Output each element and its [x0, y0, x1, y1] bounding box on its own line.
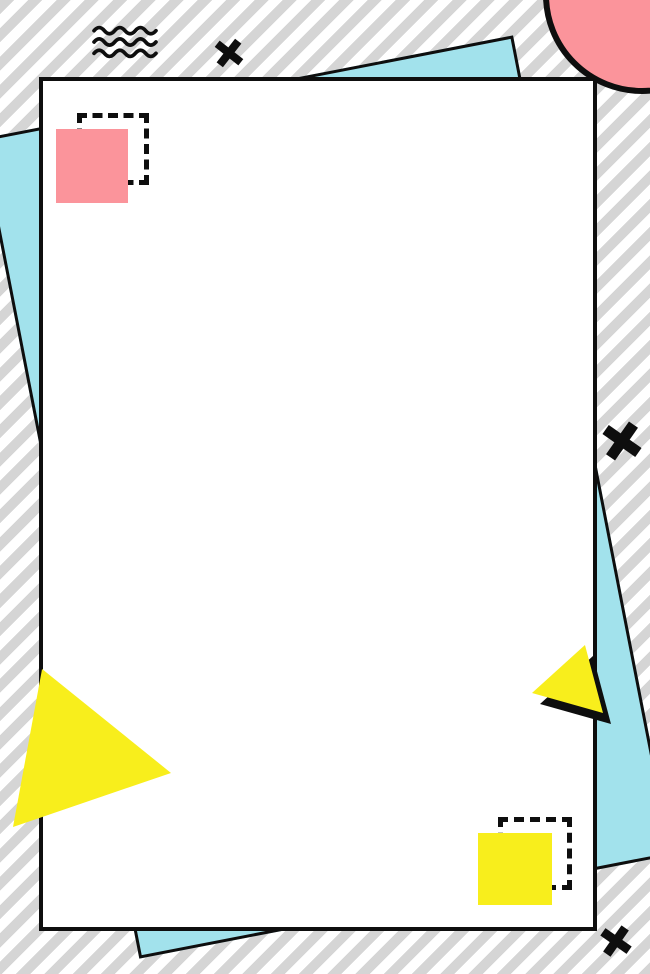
cross-mark-bottom-icon: [594, 919, 639, 964]
pink-square: [56, 129, 128, 203]
memphis-poster-background: [0, 0, 650, 974]
squiggle-waves-icon: [92, 24, 158, 60]
cross-mark-top-icon: [208, 32, 250, 74]
white-canvas-card: [39, 77, 597, 931]
cross-mark-right-icon: [594, 413, 650, 469]
yellow-square: [478, 833, 552, 905]
